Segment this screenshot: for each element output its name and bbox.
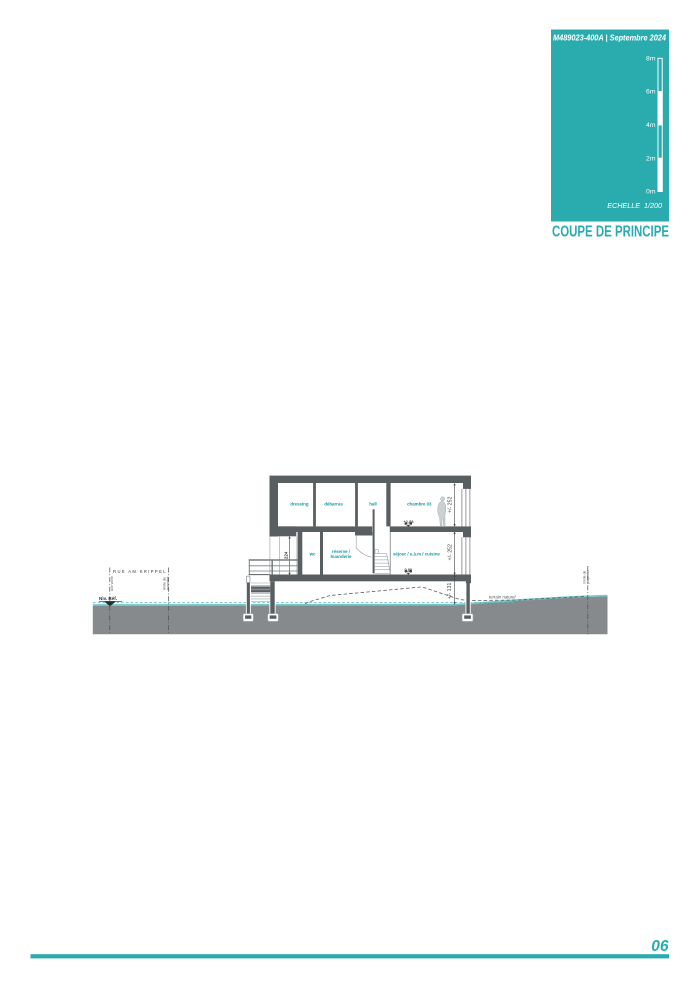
svg-text:RUE AM KRIPPEL: RUE AM KRIPPEL — [113, 569, 167, 574]
svg-text:axe voirie: axe voirie — [110, 576, 114, 591]
svg-text:propriété: propriété — [166, 577, 170, 591]
svg-text:06: 06 — [651, 938, 669, 955]
svg-text:2m: 2m — [646, 155, 656, 162]
svg-text:ECHELLE 1/200: ECHELLE 1/200 — [607, 201, 662, 210]
svg-text:224: 224 — [284, 551, 289, 559]
svg-text:dressing: dressing — [290, 501, 309, 506]
svg-text:+/- 131: +/- 131 — [447, 583, 453, 599]
svg-text:chambre 03: chambre 03 — [407, 501, 432, 506]
svg-text:Nìv. Réf.: Nìv. Réf. — [99, 596, 117, 601]
svg-text:+/- 252: +/- 252 — [447, 544, 453, 560]
svg-text:8m: 8m — [646, 55, 656, 62]
svg-text:4m: 4m — [646, 122, 656, 129]
svg-text:terrain naturel: terrain naturel — [489, 595, 517, 600]
svg-text:propriété: propriété — [586, 570, 590, 584]
svg-text:wc: wc — [309, 552, 316, 557]
svg-text:M489023-400A | Septembre 2024: M489023-400A | Septembre 2024 — [553, 33, 666, 43]
svg-text:6m: 6m — [646, 89, 656, 96]
svg-text:séjour / s.à.m / cuisine: séjour / s.à.m / cuisine — [393, 551, 440, 556]
svg-text:buanderie: buanderie — [331, 554, 353, 559]
svg-text:COUPE DE PRINCIPE: COUPE DE PRINCIPE — [552, 224, 669, 241]
svg-text:+/- 252: +/- 252 — [448, 497, 454, 513]
svg-text:hall: hall — [369, 501, 377, 506]
svg-text:débarras: débarras — [324, 501, 343, 506]
svg-text:0m: 0m — [646, 189, 656, 196]
